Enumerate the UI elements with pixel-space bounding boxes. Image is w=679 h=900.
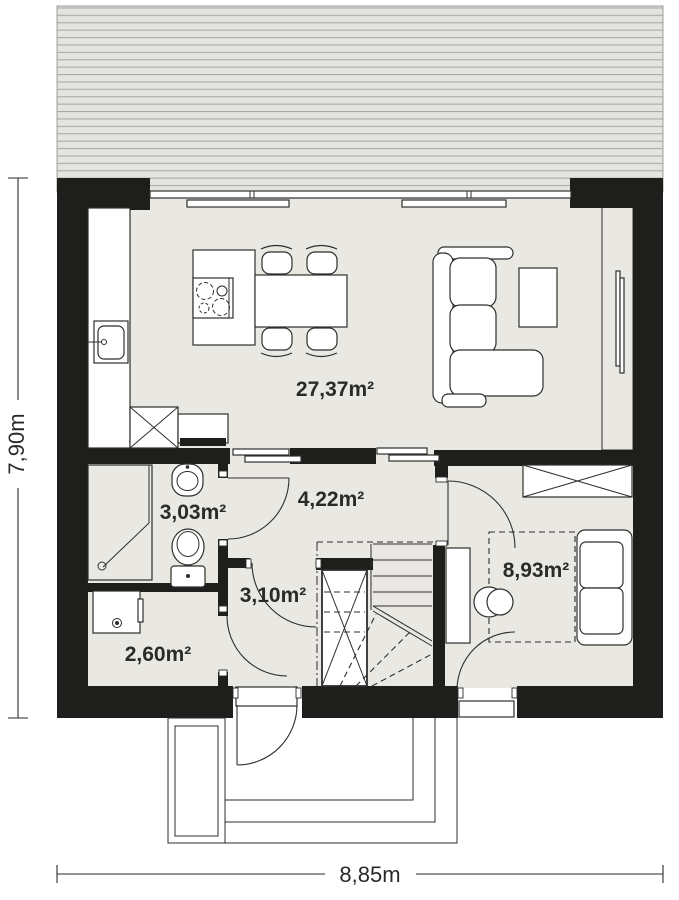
utility-boiler: [93, 591, 143, 633]
height-dimension: 7,90m: [4, 178, 29, 718]
corridor-area-label: 3,10m²: [240, 584, 307, 607]
porch-step: [225, 718, 457, 843]
floor-plan: 27,37m² 4,22m² 3,03m² 3,10m² 2,60m² 8,93…: [0, 0, 679, 900]
washbasin: [172, 464, 203, 496]
kitchen-island: [193, 250, 255, 345]
chair: [262, 328, 292, 350]
width-dimension-label: 8,85m: [339, 862, 400, 887]
porch-step: [225, 718, 435, 822]
chair: [262, 252, 292, 274]
width-dimension: 8,85m: [57, 862, 663, 887]
hall-area-label: 4,22m²: [298, 488, 365, 511]
chair: [307, 252, 337, 274]
porch-step: [225, 718, 413, 800]
cooktop: [193, 278, 233, 318]
roof-hatch: [57, 6, 663, 192]
height-dimension-label: 7,90m: [4, 413, 29, 474]
floor-plan-page: 27,37m² 4,22m² 3,03m² 3,10m² 2,60m² 8,93…: [0, 0, 679, 900]
entrance-porch: [168, 718, 457, 843]
toilet: [171, 529, 205, 587]
bedroom-sofa: [577, 530, 632, 645]
living-area-label: 27,37m²: [296, 378, 374, 401]
bedroom-desk: [446, 548, 470, 643]
shower: [88, 465, 152, 580]
utility-area-label: 2,60m²: [125, 643, 192, 666]
bedroom-area-label: 8,93m²: [503, 559, 570, 582]
coffee-table: [519, 268, 557, 327]
entrance-door: [236, 687, 297, 765]
bathroom-area-label: 3,03m²: [160, 501, 227, 524]
kitchen-counter: [88, 208, 130, 448]
chair: [307, 328, 337, 350]
